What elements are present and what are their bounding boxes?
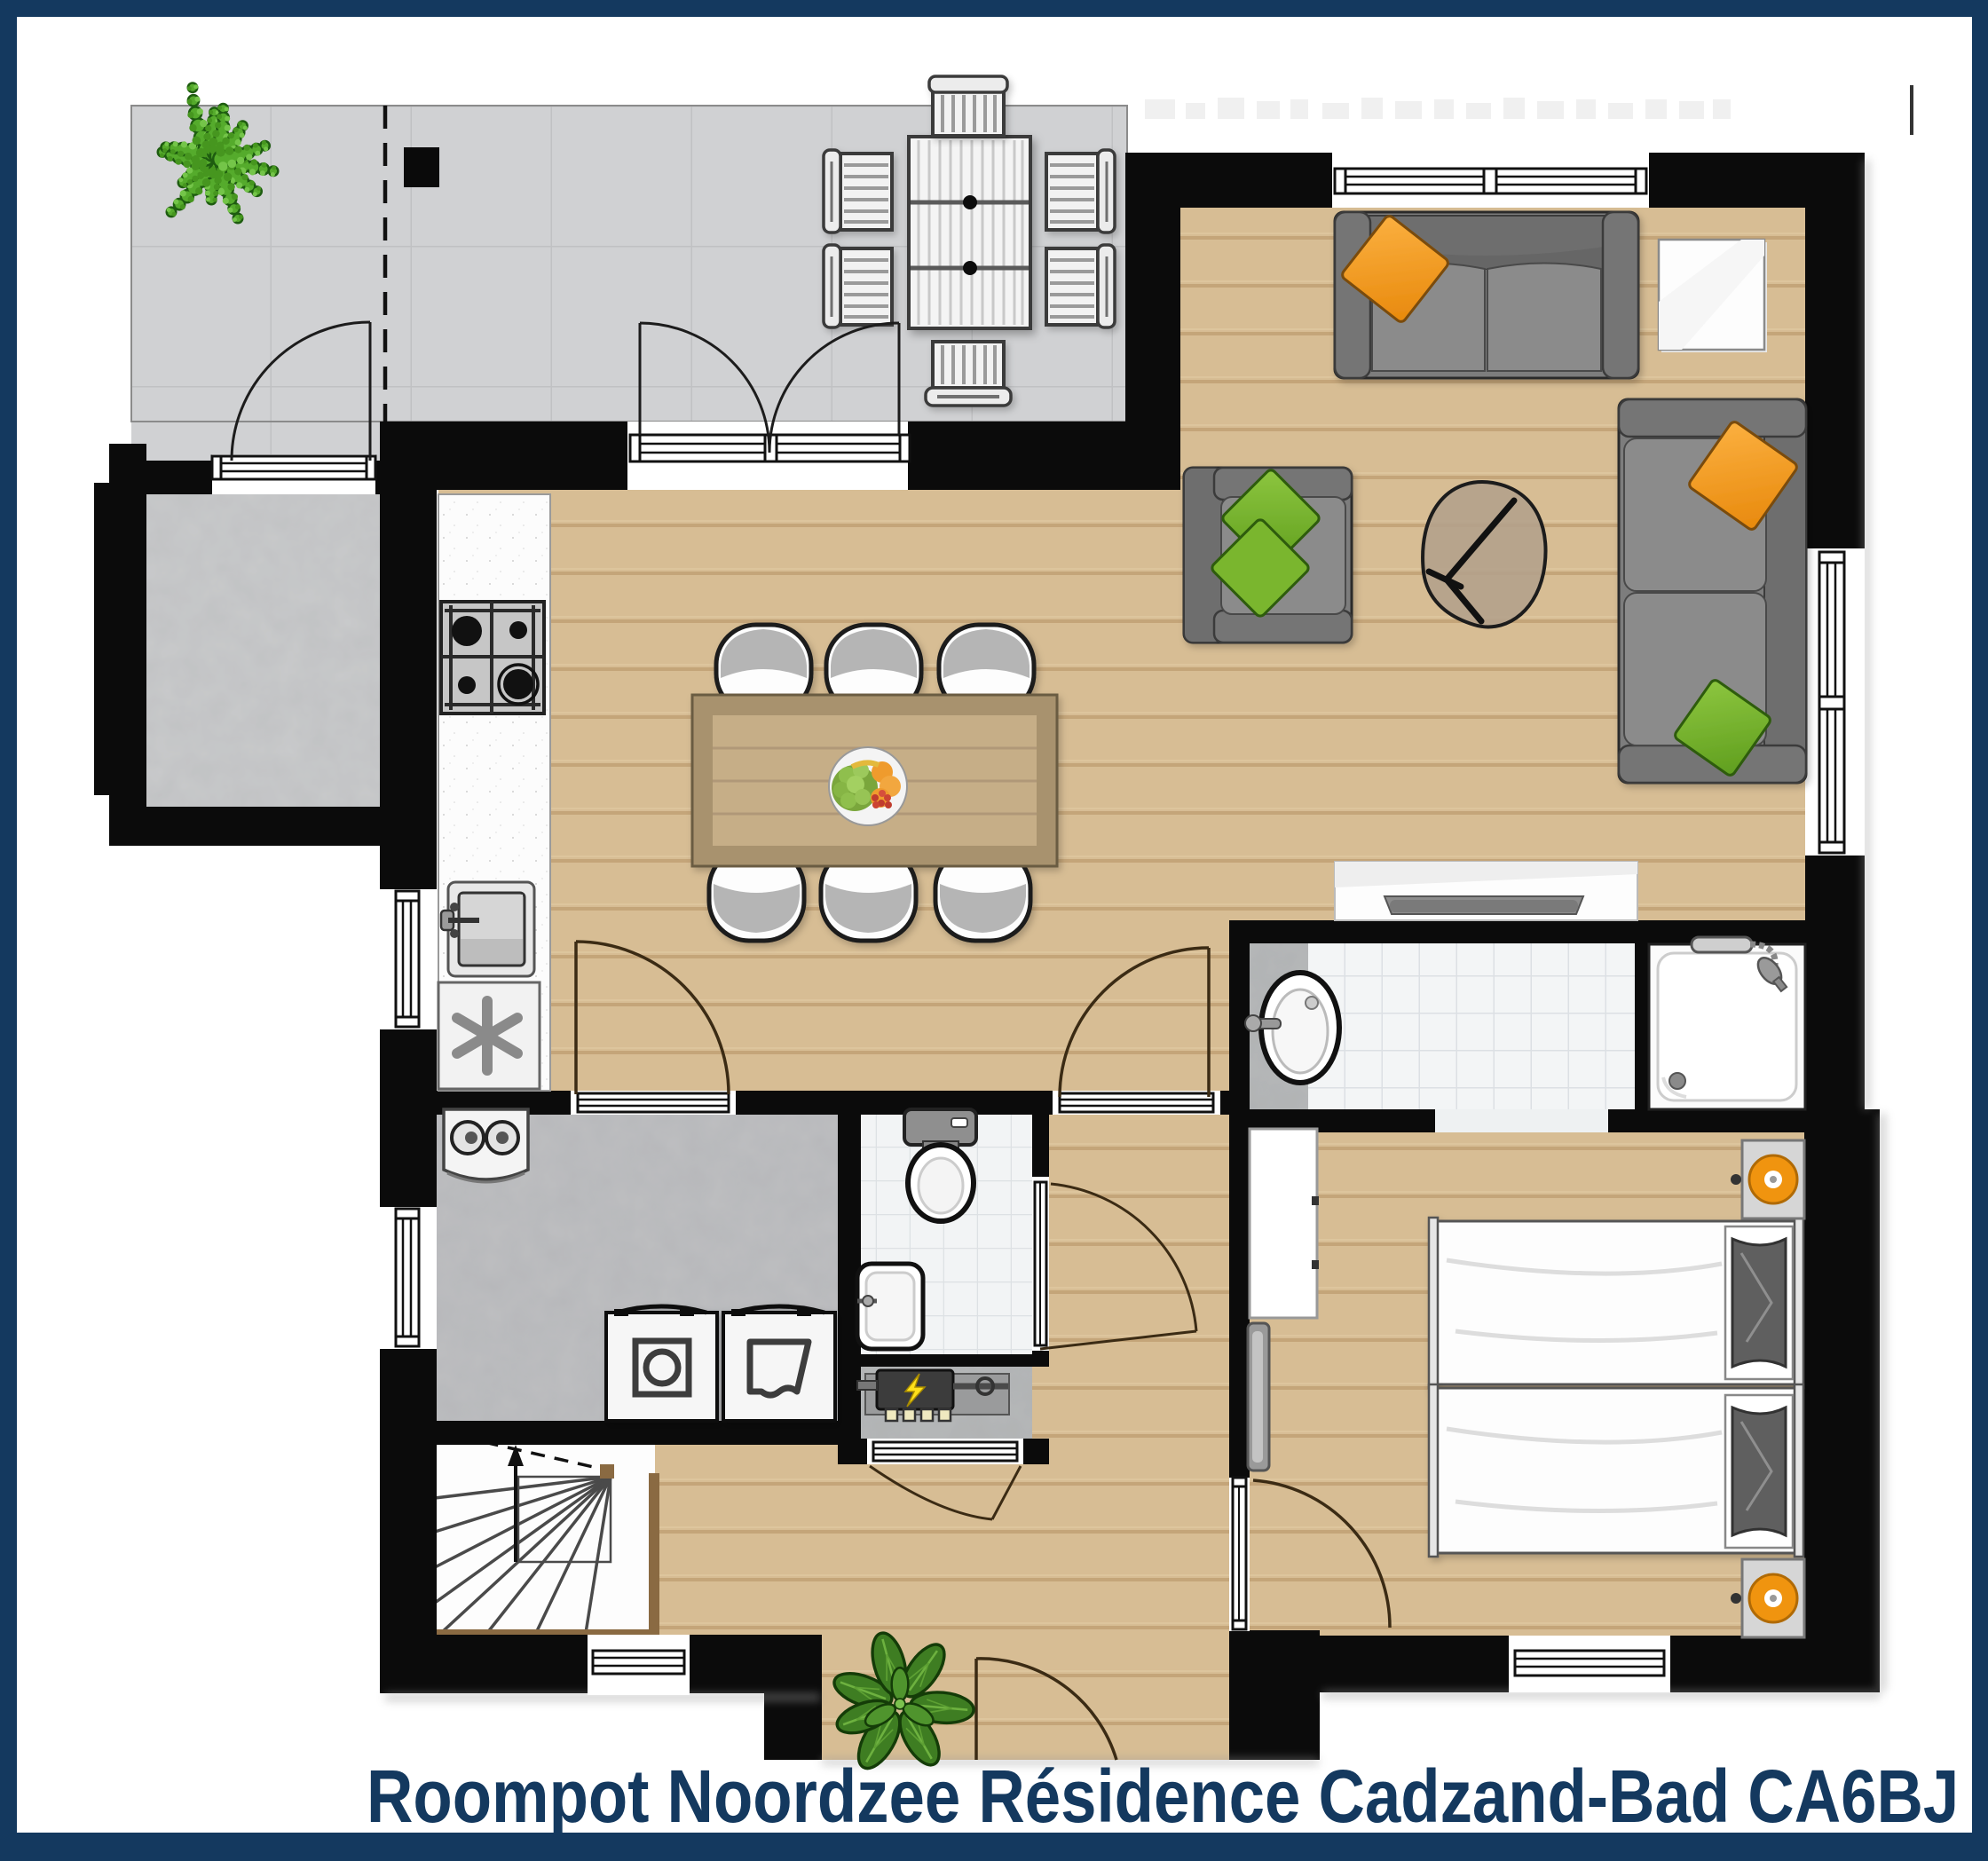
svg-text:Roompot Noordzee Résidence Cad: Roompot Noordzee Résidence Cadzand-Bad C… [367, 1755, 1959, 1838]
